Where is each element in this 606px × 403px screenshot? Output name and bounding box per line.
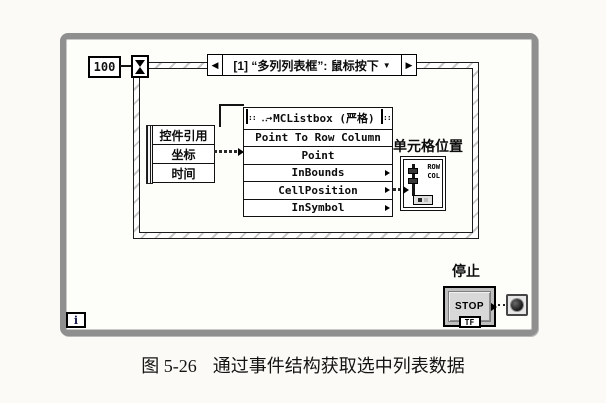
next-event-button[interactable]: ▶ [401, 55, 416, 75]
figure-caption: 图 5-26通过事件结构获取选中列表数据 [0, 352, 606, 378]
method-arrow-icon: ‥→ [261, 113, 270, 124]
output-arrow-icon [385, 205, 390, 211]
col-text: COL [427, 172, 440, 180]
invoke-node-header[interactable]: :: ‥→ MCListbox (严格) :: [243, 107, 393, 130]
cluster-icon: ROW COL [403, 159, 443, 208]
param-label: CellPosition [278, 184, 357, 197]
invoke-param-insymbol[interactable]: InSymbol [243, 199, 393, 217]
figure-number: 图 5-26 [141, 356, 197, 376]
scanned-figure-page: 100 ◀ [1] “多列列表框”: 鼠标按下 ▼ ▶ 控件引用 坐标 时间 :… [0, 0, 606, 403]
cell-position-indicator[interactable]: ROW COL [400, 156, 446, 211]
invoke-method-row[interactable]: Point To Row Column [243, 129, 393, 147]
numeric-icon [413, 195, 433, 205]
event-data-field-time[interactable]: 时间 [152, 163, 215, 183]
timeout-constant[interactable]: 100 [88, 56, 121, 78]
stop-label: 停止 [452, 261, 480, 281]
reference-wire-horizontal [219, 104, 244, 106]
event-case-label: [1] “多列列表框”: 鼠标按下 [233, 57, 378, 74]
output-arrow-icon [385, 187, 390, 193]
timeout-terminal[interactable] [131, 55, 149, 78]
invoke-node-class-label: MCListbox (严格) [273, 110, 374, 126]
hourglass-icon [135, 60, 145, 74]
invoke-node-mclistbox[interactable]: :: ‥→ MCListbox (严格) :: Point To Row Col… [243, 107, 393, 217]
event-data-field-coords[interactable]: 坐标 [152, 144, 215, 164]
slider-knob-icon [408, 168, 418, 174]
chevron-down-icon[interactable]: ▼ [383, 61, 391, 70]
reference-wire-vertical [219, 104, 221, 127]
invoke-param-point[interactable]: Point [243, 146, 393, 164]
loop-condition-terminal[interactable] [506, 294, 528, 316]
prev-event-button[interactable]: ◀ [208, 55, 223, 75]
input-arrow-icon [403, 186, 409, 194]
reference-corner-icon: :: [381, 110, 390, 128]
row-text: ROW [427, 163, 440, 171]
reference-corner-icon: :: [246, 110, 255, 128]
iteration-terminal[interactable]: i [66, 312, 86, 328]
stop-sign-icon [511, 299, 523, 311]
figure-title: 通过事件结构获取选中列表数据 [213, 356, 465, 376]
invoke-param-inbounds[interactable]: InBounds [243, 164, 393, 182]
param-label: InBounds [292, 166, 345, 179]
cell-position-label: 单元格位置 [393, 136, 473, 156]
boolean-type-tag: TF [459, 316, 481, 328]
slider-knob-icon [408, 178, 418, 184]
event-selector-title[interactable]: [1] “多列列表框”: 鼠标按下 ▼ [223, 55, 401, 75]
coords-cluster-wire [214, 150, 239, 153]
output-arrow-icon [385, 170, 390, 176]
event-selector: ◀ [1] “多列列表框”: 鼠标按下 ▼ ▶ [207, 54, 417, 76]
invoke-param-cellposition[interactable]: CellPosition [243, 181, 393, 199]
output-arrow-icon [491, 303, 497, 311]
event-data-node: 控件引用 坐标 时间 [152, 125, 215, 183]
stop-button-terminal[interactable]: STOP TF [443, 286, 496, 327]
event-data-field-ctlref[interactable]: 控件引用 [152, 125, 215, 145]
param-label: InSymbol [292, 201, 345, 214]
